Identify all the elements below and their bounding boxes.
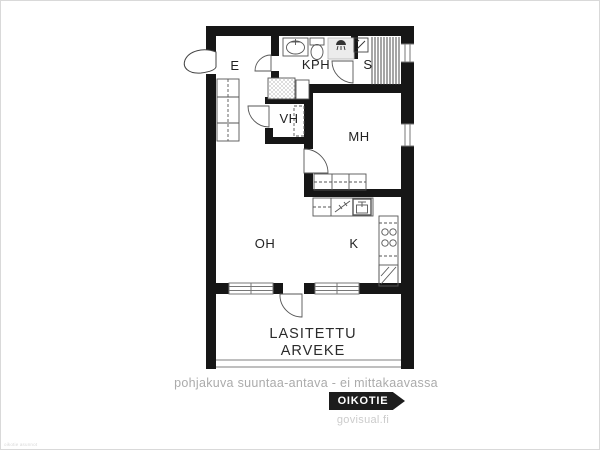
washbasin-icon (283, 38, 308, 56)
sauna-fixtures (354, 37, 399, 85)
livingroom-window-left (229, 283, 273, 294)
balcony-label-line1: LASITETTU (269, 326, 356, 342)
bathroom-door-arc (255, 55, 271, 71)
stove-hob-icon (382, 229, 396, 246)
sauna-window (401, 44, 414, 62)
washing-machine-icon (296, 80, 309, 99)
room-label-walkin-closet: VH (279, 111, 298, 126)
oikotie-badge: OIKOTIE (329, 392, 405, 410)
floorplan-page: E KPH S VH MH OH K LASITETTU ARVEKE pohj… (0, 0, 600, 450)
credit-text: govisual.fi (318, 414, 408, 426)
balcony-label-line2: ARVEKE (281, 343, 346, 359)
balcony-glazing-lines (216, 360, 401, 367)
bedroom-window (401, 124, 414, 146)
room-label-bedroom: MH (348, 129, 369, 144)
entrance-door-icon (184, 50, 216, 73)
fridge-icon (379, 265, 398, 286)
room-label-sauna: S (363, 57, 372, 72)
bedroom-door-arc (304, 149, 328, 173)
room-label-living-room: OH (255, 236, 276, 251)
livingroom-window-right (315, 283, 359, 294)
floor-drain-area (268, 78, 295, 99)
closet-door-arc (248, 106, 269, 127)
room-label-bathroom: KPH (302, 57, 330, 72)
bedroom-wardrobe-icon (314, 174, 366, 190)
balcony-door-arc (280, 294, 302, 317)
oikotie-badge-label: OIKOTIE (338, 395, 389, 407)
room-label-kitchen: K (349, 236, 358, 251)
watermark-text: oikotie asunnot (4, 442, 37, 447)
sauna-door-arc (332, 61, 353, 83)
exterior-walls (206, 26, 414, 369)
room-label-entrance: E (230, 58, 239, 73)
shower-icon (328, 38, 354, 59)
kitchen-sink-icon (353, 199, 371, 215)
entrance-wardrobe-icon (217, 79, 239, 141)
dishwasher-icon (335, 201, 350, 212)
sauna-bench-lines (372, 37, 399, 85)
disclaimer-text: pohjakuva suuntaa-antava - ei mittakaava… (151, 376, 461, 390)
